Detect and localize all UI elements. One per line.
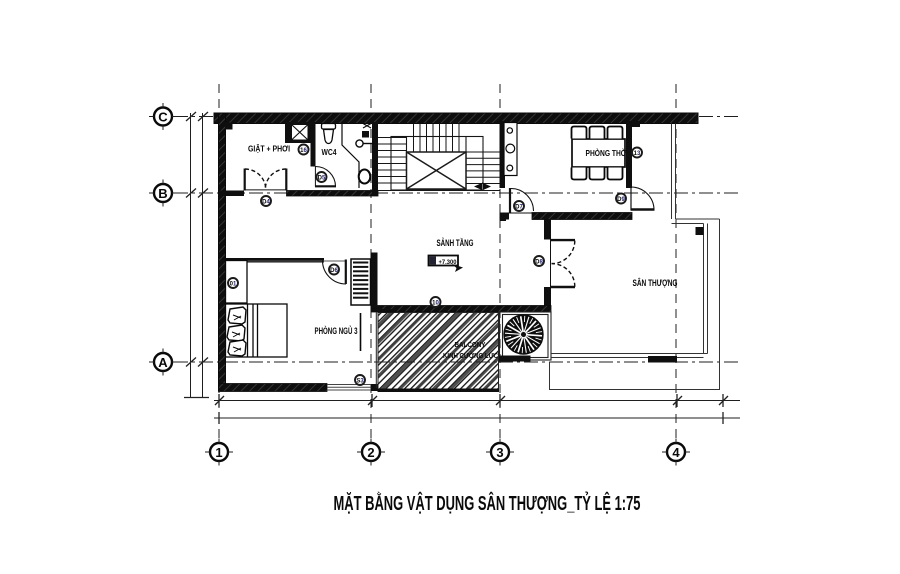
svg-text:D7: D7: [515, 205, 523, 211]
svg-text:MẶT BẰNG VẬT DỤNG SÂN THƯỢNG_T: MẶT BẰNG VẬT DỤNG SÂN THƯỢNG_TỶ LỆ 1:75: [334, 491, 641, 515]
svg-text:10: 10: [432, 301, 439, 307]
svg-text:PHÒNG THỜ: PHÒNG THỜ: [586, 147, 628, 158]
svg-text:GIẶT + PHƠI: GIẶT + PHƠI: [248, 145, 290, 154]
svg-text:D4: D4: [262, 200, 270, 206]
svg-text:16: 16: [300, 148, 307, 154]
svg-text:D8: D8: [535, 260, 543, 266]
svg-text:SẢNH TẦNG: SẢNH TẦNG: [437, 237, 474, 248]
svg-text:WC4: WC4: [322, 147, 337, 157]
svg-text:S3: S3: [356, 379, 364, 385]
svg-text:1: 1: [215, 445, 222, 460]
svg-text:D5: D5: [318, 176, 326, 182]
svg-text:B: B: [158, 186, 167, 201]
svg-text:D6: D6: [330, 268, 338, 274]
svg-text:D9: D9: [617, 197, 625, 203]
svg-text:4: 4: [672, 445, 680, 460]
svg-text:2: 2: [367, 445, 374, 460]
svg-text:KÍNH CƯỜNG LỰC: KÍNH CƯỜNG LỰC: [443, 351, 498, 360]
svg-text:13: 13: [634, 151, 641, 157]
svg-text:PHÒNG NGỦ 3: PHÒNG NGỦ 3: [315, 325, 358, 336]
svg-text:C: C: [158, 110, 168, 125]
svg-text:BALCONY: BALCONY: [455, 340, 486, 349]
svg-text:01: 01: [230, 282, 237, 288]
svg-text:SÂN THƯỢNG: SÂN THƯỢNG: [633, 277, 678, 288]
svg-text:A: A: [158, 355, 168, 370]
svg-text:3: 3: [496, 445, 503, 460]
